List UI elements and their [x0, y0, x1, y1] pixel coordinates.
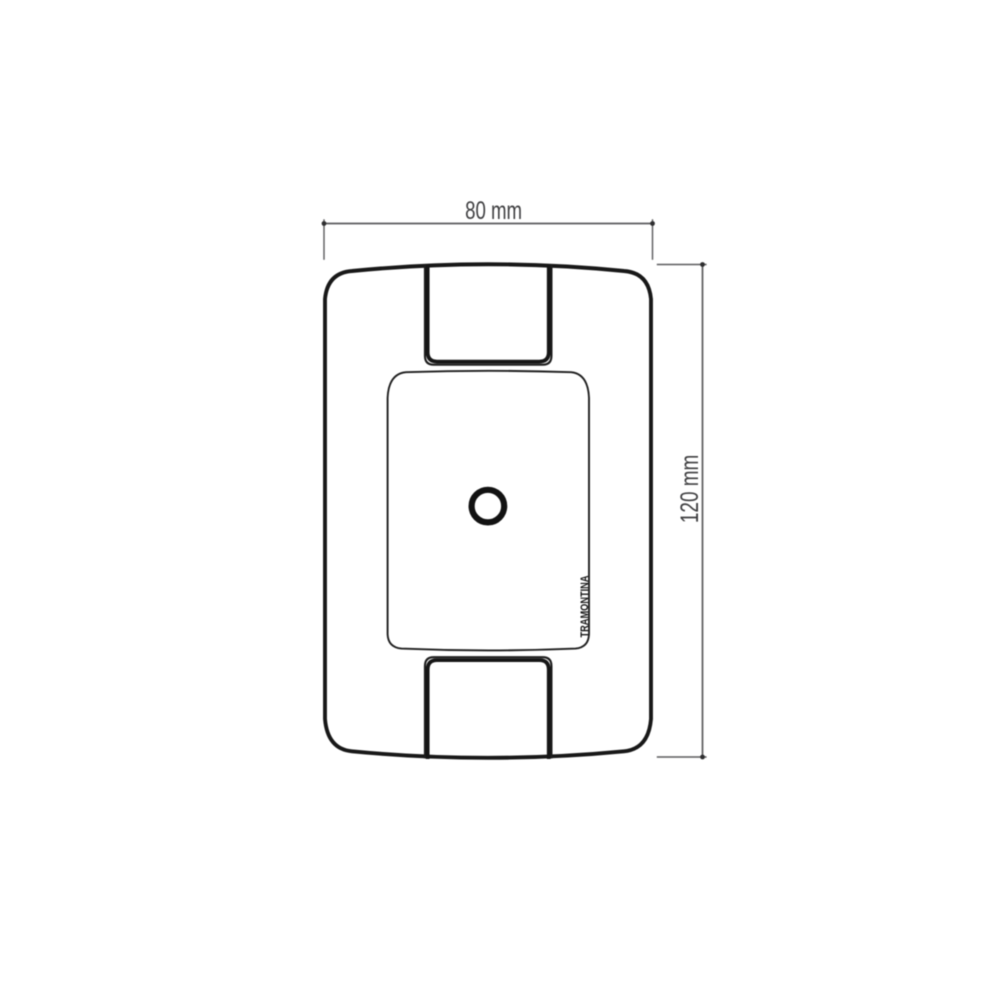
svg-text:80 mm: 80 mm [465, 197, 522, 225]
svg-text:TRAMONTINA: TRAMONTINA [579, 575, 591, 637]
svg-text:120 mm: 120 mm [676, 455, 704, 524]
